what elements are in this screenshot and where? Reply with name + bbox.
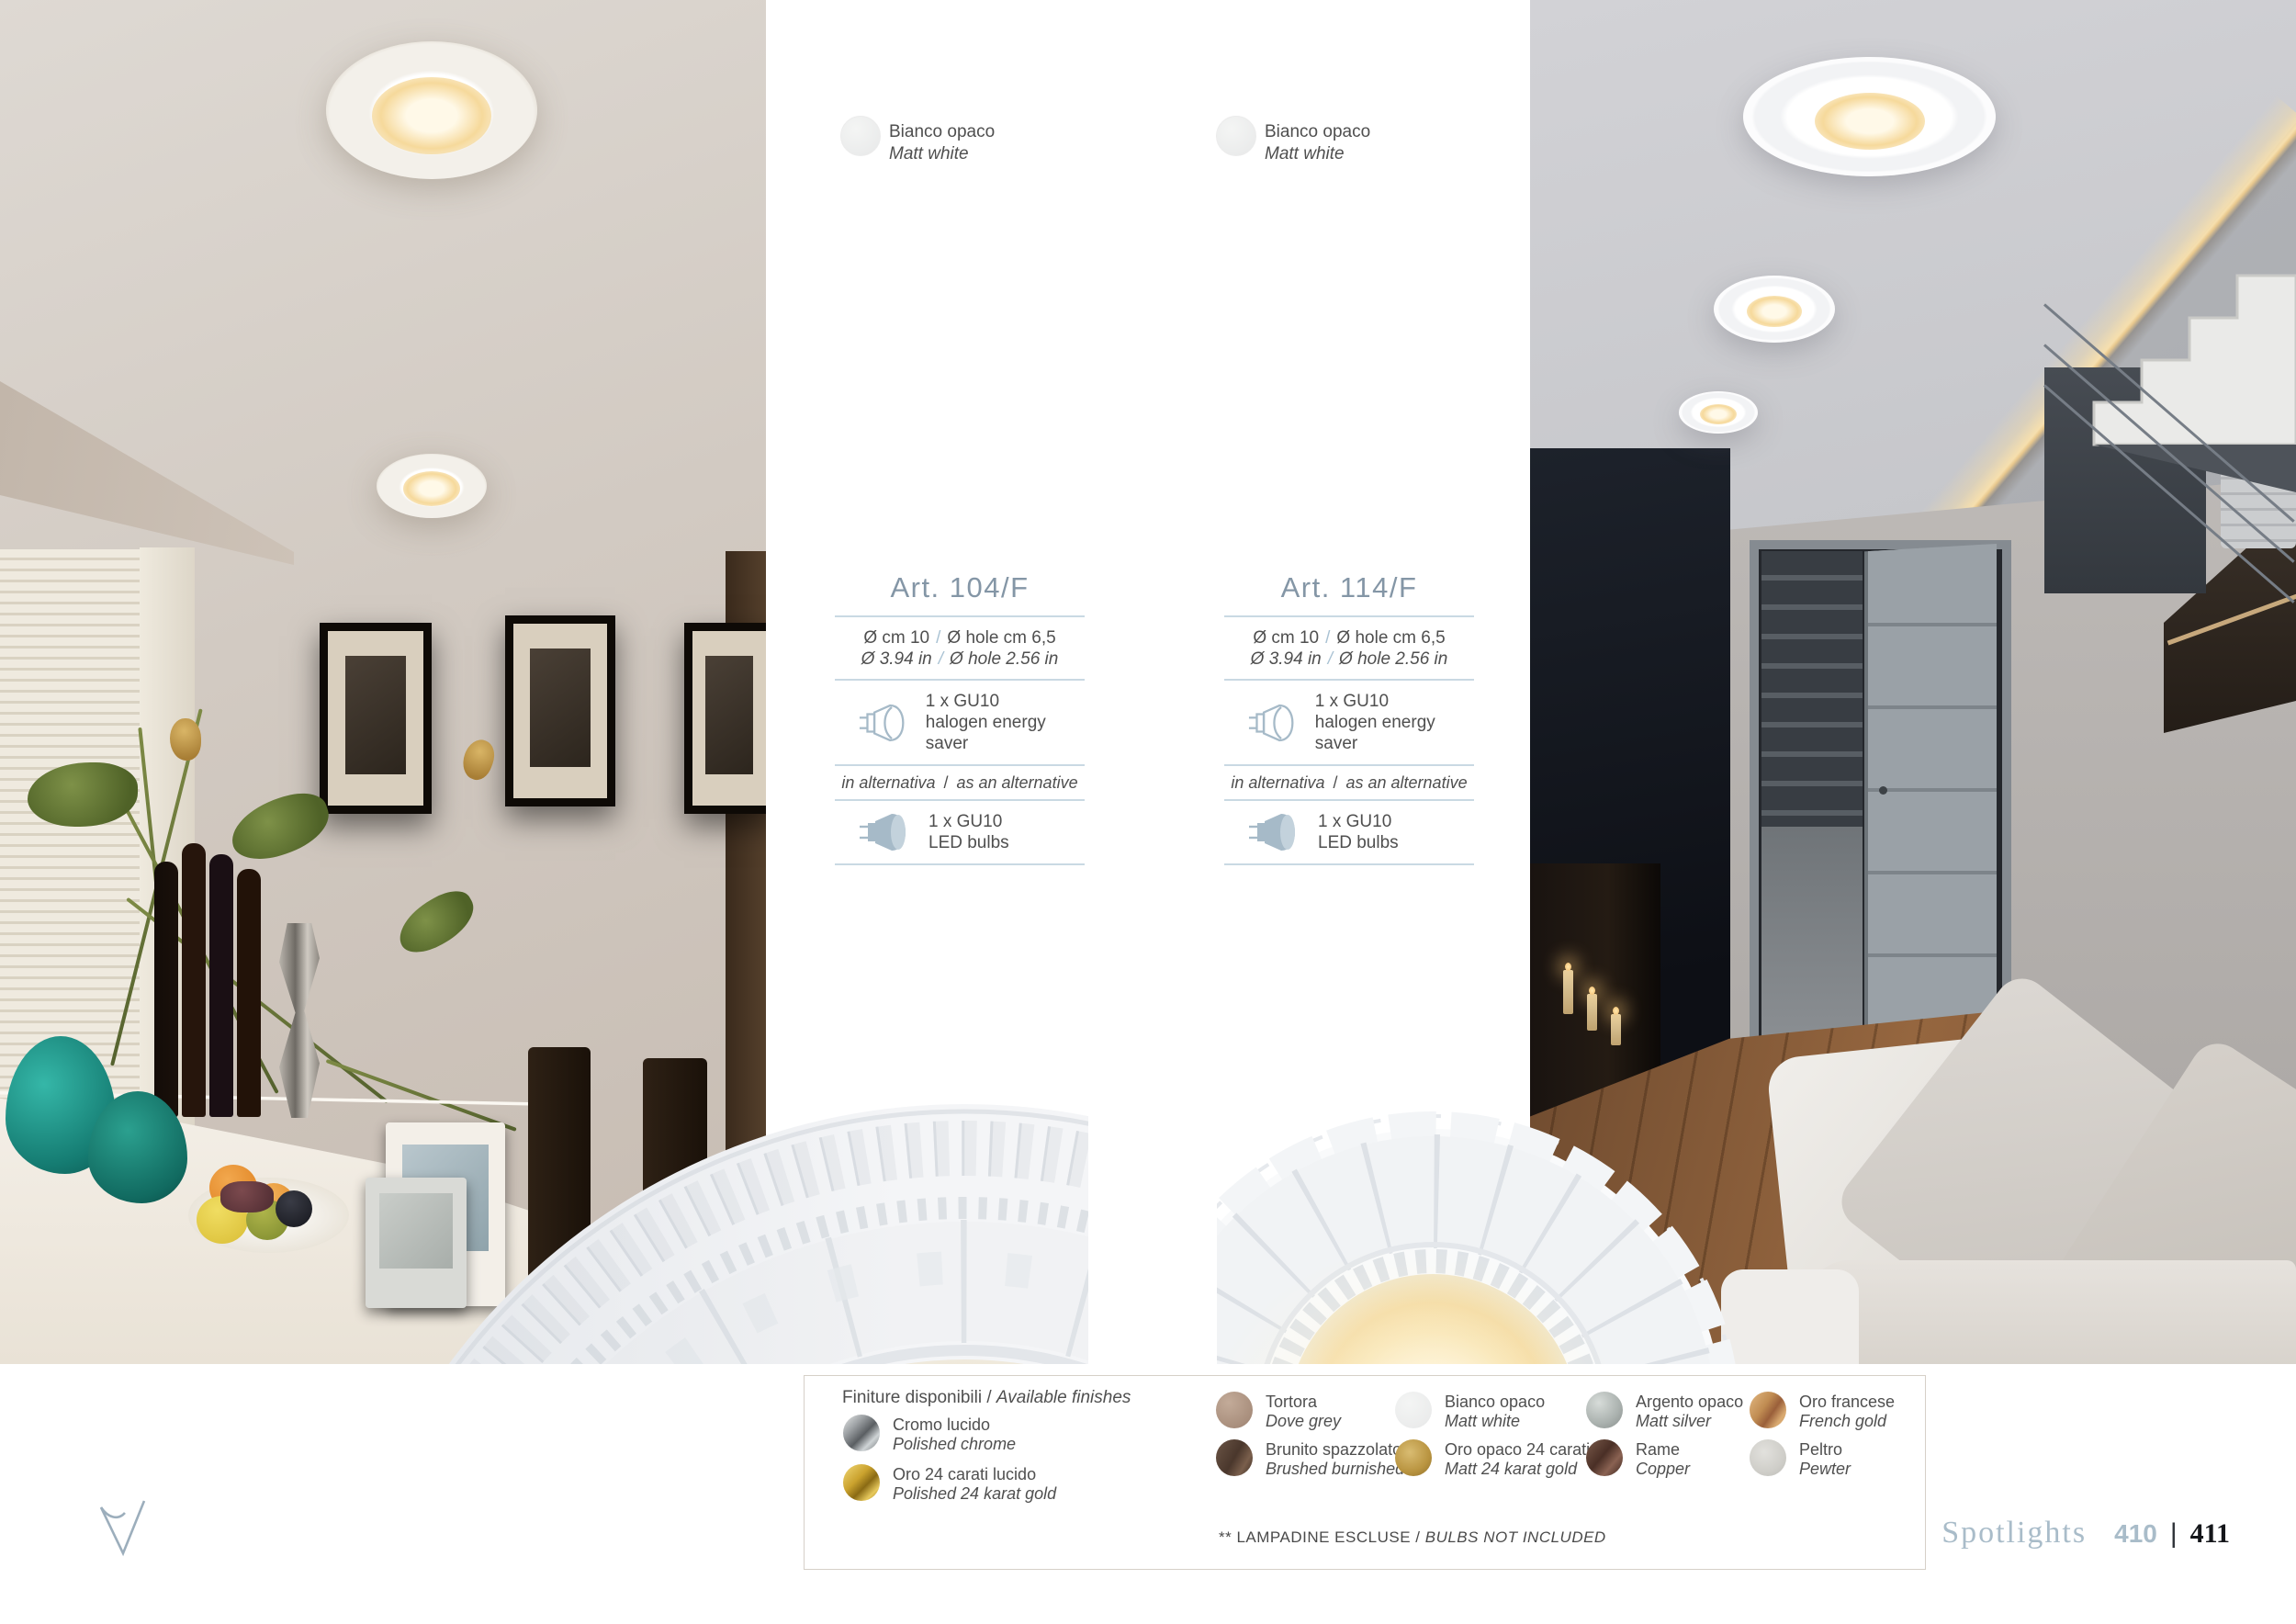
finish-name-en: Copper <box>1636 1460 1690 1479</box>
finish-swatch <box>1586 1439 1623 1476</box>
bulb-type: halogen energy saver <box>926 712 1085 754</box>
spotlight-glow <box>403 471 460 506</box>
bulb-qty: 1 x GU10 <box>929 811 1009 832</box>
slash: / <box>940 773 951 792</box>
spotlight-glow <box>1700 404 1737 424</box>
finish-name-en: Matt white <box>1265 143 1370 165</box>
bulb-qty: 1 x GU10 <box>1315 691 1474 712</box>
finish-label: Bianco opaco Matt white <box>889 121 995 165</box>
dim-metric: Ø cm 10 <box>863 628 929 648</box>
alternative-note: in alternativa / as an alternative <box>1224 772 1474 794</box>
divider <box>1224 764 1474 766</box>
sofa-seat <box>1806 1260 2296 1364</box>
divider <box>835 863 1085 865</box>
flower-head <box>170 718 201 761</box>
page-number-right: 411 <box>2190 1518 2230 1550</box>
finish-name-it: Brunito spazzolato <box>1266 1440 1401 1460</box>
frame-art <box>530 648 590 767</box>
frame-art <box>705 656 752 774</box>
gu10-bulb-outline-icon <box>859 703 913 743</box>
finish-name-it: Bianco opaco <box>1445 1393 1545 1412</box>
finishes-header: Finiture disponibili / Available finishe… <box>842 1388 1131 1408</box>
spotlight-glow <box>1747 296 1802 327</box>
page-footer: Spotlights 410 | 411 <box>1941 1516 2230 1551</box>
product-spec-block: Art. 114/F Ø cm 10/Ø hole cm 6,5 Ø 3.94 … <box>1224 571 1474 871</box>
dim-imperial: Ø 3.94 in <box>861 649 932 669</box>
bulb-type: halogen energy saver <box>1315 712 1474 754</box>
finish-swatch <box>1216 1439 1253 1476</box>
sofa-armrest <box>1721 1269 1859 1364</box>
finish-name-en: Matt 24 karat gold <box>1445 1460 1577 1479</box>
finish-swatch <box>1586 1392 1623 1428</box>
finish-name-en: Matt silver <box>1636 1412 1711 1431</box>
bulb-type: LED bulbs <box>929 832 1009 853</box>
finish-name-it: Rame <box>1636 1440 1680 1460</box>
gu10-bulb-outline-icon <box>1248 703 1302 743</box>
bulb-spec-halogen: 1 x GU10 halogen energy saver <box>835 686 1085 759</box>
dimensions: Ø cm 10/Ø hole cm 6,5 Ø 3.94 in/Ø hole 2… <box>835 623 1085 673</box>
divider <box>1224 679 1474 681</box>
spotlight-glow <box>372 77 491 154</box>
finish-name-en: French gold <box>1799 1412 1886 1431</box>
divider <box>835 615 1085 617</box>
slash: / <box>929 628 947 648</box>
finish-swatch <box>1395 1439 1432 1476</box>
bulb-qty: 1 x GU10 <box>1318 811 1399 832</box>
finishes-header-en: Available finishes <box>996 1388 1131 1407</box>
product-code: Art. 114/F <box>1224 571 1474 610</box>
finish-name-it: Peltro <box>1799 1440 1842 1460</box>
dim-imperial: Ø 3.94 in <box>1251 649 1322 669</box>
ceiling-spotlight-small <box>377 454 487 518</box>
plaster-ring-image <box>1217 1102 1736 1364</box>
finish-name-it: Oro 24 carati lucido <box>893 1465 1036 1484</box>
divider <box>1224 799 1474 801</box>
ceiling-spotlight-large <box>326 41 537 179</box>
finish-swatch <box>1216 1392 1253 1428</box>
hole-metric: Ø hole cm 6,5 <box>947 628 1055 648</box>
divider <box>1224 863 1474 865</box>
frame-art <box>345 656 407 774</box>
open-door-leaf <box>1864 544 1997 1054</box>
hole-imperial: Ø hole 2.56 in <box>950 649 1058 669</box>
dim-metric: Ø cm 10 <box>1253 628 1319 648</box>
finish-name-en: Matt white <box>1445 1412 1520 1431</box>
ceiling-soffit <box>0 381 294 565</box>
finish-name-en: Polished 24 karat gold <box>893 1484 1056 1504</box>
product-cutout-114F <box>1217 1102 1736 1364</box>
divider <box>835 764 1085 766</box>
spotlight-glow <box>1815 93 1925 150</box>
finish-name-it: Bianco opaco <box>889 121 995 143</box>
finish-name-en: Pewter <box>1799 1460 1851 1479</box>
finish-label: Bianco opaco Matt white <box>1265 121 1370 165</box>
ceiling-spotlight-flower-medium <box>1714 276 1835 343</box>
divider <box>835 679 1085 681</box>
divider <box>835 799 1085 801</box>
finish-name-it: Oro opaco 24 carati <box>1445 1440 1590 1460</box>
finish-name-it: Tortora <box>1266 1393 1317 1412</box>
finish-swatch-matt-white <box>1216 116 1256 156</box>
candle <box>1587 994 1597 1031</box>
finish-name-it: Bianco opaco <box>1265 121 1370 143</box>
picture-frame <box>320 623 432 814</box>
finish-name-en: Polished chrome <box>893 1435 1016 1454</box>
finish-name-en: Matt white <box>889 143 995 165</box>
product-spec-block: Art. 104/F Ø cm 10/Ø hole cm 6,5 Ø 3.94 … <box>835 571 1085 871</box>
page-divider: | <box>2170 1518 2178 1550</box>
bulbs-note-en: BULBS NOT INCLUDED <box>1425 1528 1606 1546</box>
candle <box>1563 970 1573 1014</box>
finish-swatch <box>843 1415 880 1451</box>
slash: / <box>1329 773 1341 792</box>
finish-swatch-matt-white <box>840 116 881 156</box>
ceiling-spotlight-flower-small <box>1679 391 1758 434</box>
candle <box>1611 1014 1621 1045</box>
picture-frame <box>505 615 615 806</box>
bulbs-note-it: ** LAMPADINE ESCLUSE <box>1219 1528 1411 1546</box>
section-title: Spotlights <box>1941 1516 2087 1551</box>
bulb-spec-halogen: 1 x GU10 halogen energy saver <box>1224 686 1474 759</box>
bulb-type: LED bulbs <box>1318 832 1399 853</box>
finish-name-it: Argento opaco <box>1636 1393 1743 1412</box>
page-number-left: 410 <box>2114 1519 2157 1549</box>
catalog-page: Bianco opaco Matt white Bianco opaco Mat… <box>0 0 2296 1624</box>
plaster-ring-image <box>321 1102 1088 1364</box>
doorway-interior <box>1761 551 1863 827</box>
finishes-header-it: Finiture disponibili <box>842 1388 982 1407</box>
finish-swatch <box>843 1464 880 1501</box>
picture-frame <box>684 623 766 814</box>
slash: / <box>1415 1528 1420 1546</box>
finish-swatch <box>1395 1392 1432 1428</box>
door-handle <box>1879 786 1887 795</box>
bulb-qty: 1 x GU10 <box>926 691 1085 712</box>
finish-name-en: Brushed burnished <box>1266 1460 1404 1479</box>
finish-name-en: Dove grey <box>1266 1412 1341 1431</box>
finish-swatch <box>1750 1439 1786 1476</box>
finish-name-it: Oro francese <box>1799 1393 1895 1412</box>
brand-logo <box>95 1497 152 1558</box>
product-code: Art. 104/F <box>835 571 1085 610</box>
slash: / <box>986 1388 991 1407</box>
gu10-bulb-filled-icon <box>859 812 916 852</box>
divider <box>1224 615 1474 617</box>
bulbs-note: ** LAMPADINE ESCLUSE / BULBS NOT INCLUDE… <box>1219 1528 1606 1547</box>
slash: / <box>1322 649 1339 669</box>
alternative-note: in alternativa / as an alternative <box>835 772 1085 794</box>
ceiling-spotlight-flower-large <box>1743 57 1996 176</box>
dimensions: Ø cm 10/Ø hole cm 6,5 Ø 3.94 in/Ø hole 2… <box>1224 623 1474 673</box>
hole-metric: Ø hole cm 6,5 <box>1336 628 1445 648</box>
slash: / <box>932 649 950 669</box>
bulb-spec-led: 1 x GU10 LED bulbs <box>1224 806 1474 858</box>
gu10-bulb-filled-icon <box>1248 812 1305 852</box>
finish-name-it: Cromo lucido <box>893 1415 990 1435</box>
bulb-spec-led: 1 x GU10 LED bulbs <box>835 806 1085 858</box>
hole-imperial: Ø hole 2.56 in <box>1339 649 1447 669</box>
slash: / <box>1319 628 1336 648</box>
doorway-interior-lower <box>1761 827 1863 1045</box>
product-cutout-104F <box>0 1056 1088 1364</box>
finish-swatch <box>1750 1392 1786 1428</box>
